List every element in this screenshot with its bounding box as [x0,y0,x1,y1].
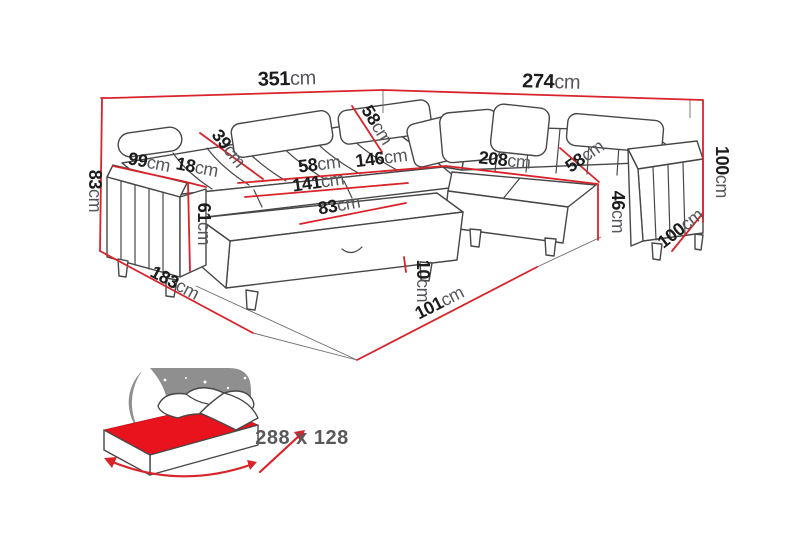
dim-label-left-height: 83cm [85,170,105,212]
dim-label-top-width-left: 351cm [258,67,317,91]
dim-label-seat-height: 46cm [608,191,628,233]
dim-label-top-width-right: 274cm [522,70,581,94]
sofa-dimension-diagram: 351cm 274cm 83cm 99cm 18cm 39cm 58cm 58c… [0,0,800,533]
dim-label-right-height: 100cm [712,146,732,198]
dim-label-left-arm-front-height: 61cm [194,203,214,245]
sleeping-size-label: 288 x 128 [255,427,348,449]
diagram-canvas: 351cm 274cm 83cm 99cm 18cm 39cm 58cm 58c… [0,0,800,533]
sleeping-function-icon: 288 x 128 [104,368,349,476]
